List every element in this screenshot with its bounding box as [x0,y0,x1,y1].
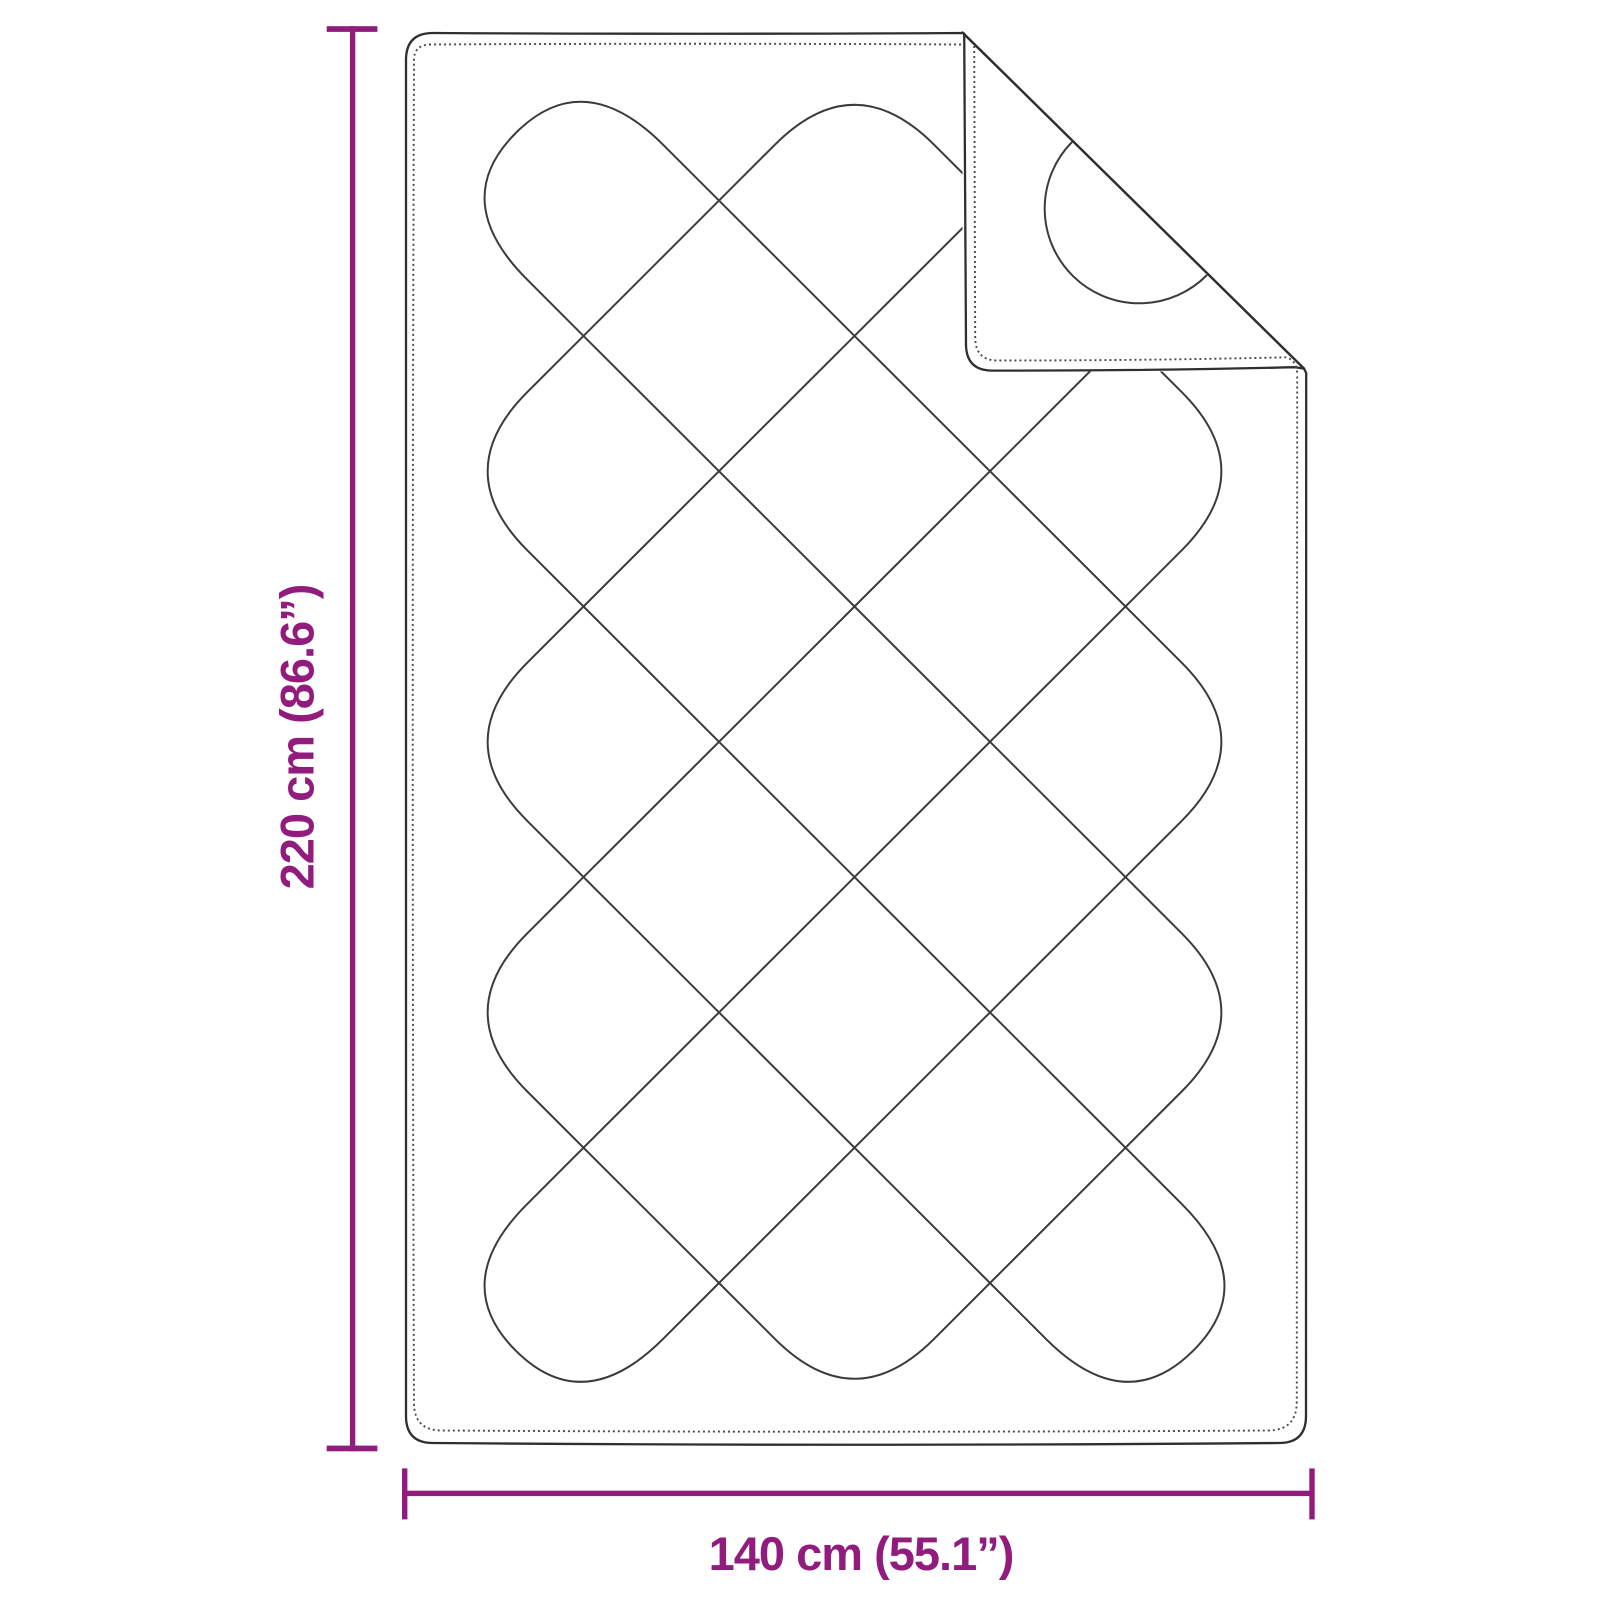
svg-text:220 cm (86.6”): 220 cm (86.6”) [271,585,324,890]
svg-text:140 cm (55.1”): 140 cm (55.1”) [709,1527,1014,1580]
